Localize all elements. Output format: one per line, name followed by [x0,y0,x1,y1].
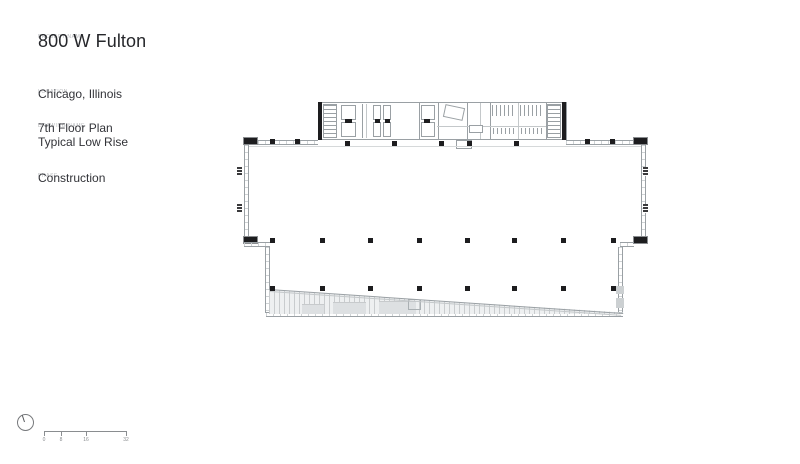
column [467,141,472,146]
facade-anchor-icon [643,204,648,213]
core-partition [366,104,367,138]
core-partition [490,103,491,139]
facade-anchor-icon [237,167,242,176]
north-wall-west [258,140,318,145]
column [561,238,566,243]
column [512,238,517,243]
column [270,286,275,291]
shear-wall-left [318,102,322,140]
mullion-block [616,286,624,294]
column [439,141,444,146]
restroom-sinks [521,128,543,134]
scale-tick [126,431,127,436]
west-wall-upper [244,145,249,236]
core-partition [419,103,420,139]
column [417,238,422,243]
elevator-door [375,119,380,123]
column [270,238,275,243]
presentation-sheet: PROJECT NAME 800 W Fulton LOCATION Chica… [0,0,800,464]
elevator-cab [341,122,356,137]
core-corridor-line [437,126,546,127]
floor-plan [0,0,800,464]
core-partition [546,103,547,139]
scale-label: 32 [123,437,129,443]
column [320,286,325,291]
hatch-inset-block [302,304,324,314]
core-partition [362,104,363,138]
north-inner-face-line [249,146,641,147]
column [585,139,590,144]
column [611,286,616,291]
restroom-sinks [493,128,515,134]
stair-west [323,104,337,138]
east-wall-upper [641,145,646,236]
scale-label: 8 [60,437,63,443]
column [561,286,566,291]
north-arrow-icon [17,414,34,431]
column [514,141,519,146]
column [512,286,517,291]
column [345,141,350,146]
hatch-inset-block [333,302,366,314]
elevator-cab [383,122,391,137]
elevator-cab [421,105,435,120]
core-room-fixture [469,125,483,133]
scale-tick [44,431,45,436]
restroom-stalls [492,105,516,116]
elevator-door [385,119,390,123]
mullion-block [616,298,624,308]
north-wall-east [566,140,634,145]
scale-bar-line [44,431,126,432]
core-partition [438,103,439,139]
scale-tick [61,431,62,436]
elevator-cab [421,122,435,137]
elevator-cab [341,105,356,120]
scale-tick [86,431,87,436]
core-partition [480,103,481,139]
column [465,286,470,291]
column [368,286,373,291]
elevator-cab [373,105,381,120]
column [320,238,325,243]
column [295,139,300,144]
elevator-door [345,119,352,123]
corner-block-ne [633,137,648,145]
core-partition [518,103,519,139]
corner-block-e-step [633,236,648,244]
column [270,139,275,144]
column [368,238,373,243]
scale-bar: 0 8 16 32 [44,428,128,444]
column [392,141,397,146]
column [610,139,615,144]
column [417,286,422,291]
core-partition [467,103,468,139]
shear-wall-right [562,102,566,140]
facade-anchor-icon [237,204,242,213]
elevator-cab [383,105,391,120]
corner-block-nw [243,137,258,145]
facade-anchor-icon [643,167,648,176]
column [611,238,616,243]
scale-label: 16 [83,437,89,443]
elevator-door [424,119,430,123]
scale-label: 0 [43,437,46,443]
restroom-stalls [520,105,544,116]
stair-east [547,104,561,138]
elevator-cab [373,122,381,137]
column [465,238,470,243]
